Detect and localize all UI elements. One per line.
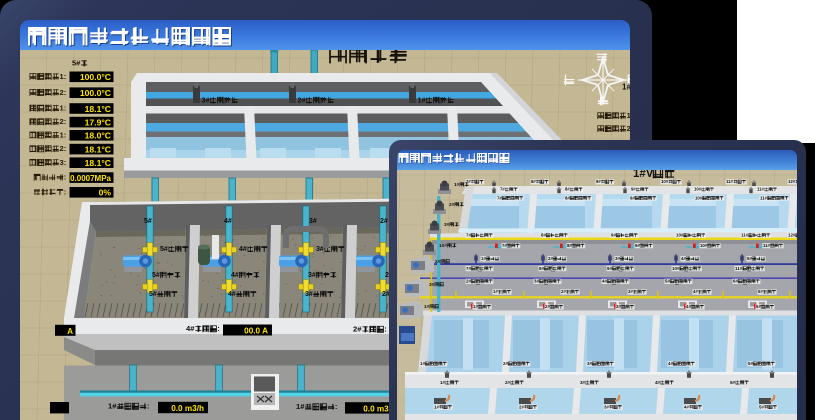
svg-text:2:: 2: <box>60 88 67 97</box>
svg-text:7#: 7# <box>502 243 507 248</box>
svg-text:18.0°C: 18.0°C <box>85 131 111 141</box>
svg-text:3:: 3: <box>60 158 67 167</box>
svg-text:9#: 9# <box>630 195 635 200</box>
svg-text:5#: 5# <box>747 256 752 261</box>
svg-text:1#: 1# <box>454 182 460 188</box>
svg-text:5#: 5# <box>144 218 152 225</box>
svg-text:1#: 1# <box>296 402 305 411</box>
svg-text:2#: 2# <box>380 218 388 225</box>
svg-text:3#: 3# <box>628 289 633 294</box>
svg-text:9#: 9# <box>596 179 601 184</box>
svg-text:8#: 8# <box>565 195 570 200</box>
svg-text:4#: 4# <box>602 279 607 284</box>
svg-text:1#: 1# <box>418 95 426 104</box>
svg-text:11#: 11# <box>735 266 743 271</box>
svg-text:5#: 5# <box>756 304 761 309</box>
svg-text:10#: 10# <box>700 243 708 248</box>
svg-text:11#: 11# <box>763 243 771 248</box>
svg-text:1#: 1# <box>493 289 498 294</box>
svg-text:2#: 2# <box>466 279 471 284</box>
svg-text:9#: 9# <box>635 243 640 248</box>
svg-text:5#: 5# <box>152 272 160 279</box>
svg-text:12#: 12# <box>788 179 796 184</box>
svg-text::: : <box>384 325 387 334</box>
svg-text:2:: 2: <box>627 124 630 133</box>
svg-text:7#: 7# <box>466 233 471 238</box>
svg-text:11#: 11# <box>741 233 749 238</box>
svg-text::: : <box>335 402 338 411</box>
svg-text:18.1°C: 18.1°C <box>85 144 111 154</box>
svg-text:10#: 10# <box>694 187 702 192</box>
svg-text:3#: 3# <box>316 246 324 253</box>
svg-text:2:: 2: <box>60 144 67 153</box>
svg-text:0.0 m3/: 0.0 m3/ <box>363 404 391 413</box>
svg-text:2#: 2# <box>545 304 550 309</box>
svg-text:1:: 1: <box>60 104 67 113</box>
svg-text:3#: 3# <box>202 95 210 104</box>
svg-text:1#V: 1#V <box>633 170 654 180</box>
svg-text:1#: 1# <box>473 304 478 309</box>
svg-text:8#: 8# <box>541 233 546 238</box>
svg-text:4#: 4# <box>224 218 232 225</box>
svg-text:2#: 2# <box>503 361 508 366</box>
svg-text:8#: 8# <box>539 266 544 271</box>
svg-text:6#: 6# <box>733 279 738 284</box>
svg-text:4#: 4# <box>668 361 673 366</box>
svg-text:9#: 9# <box>611 233 616 238</box>
svg-text:5#: 5# <box>149 291 157 298</box>
svg-text:10#: 10# <box>695 195 703 200</box>
svg-text:4#: 4# <box>693 289 698 294</box>
svg-text:3#: 3# <box>309 218 317 225</box>
svg-text:8#: 8# <box>531 179 536 184</box>
svg-text:11#: 11# <box>757 187 765 192</box>
svg-text:3#: 3# <box>444 222 450 228</box>
svg-text:5#: 5# <box>730 380 736 385</box>
svg-text:2#: 2# <box>519 404 524 409</box>
svg-text:1#: 1# <box>440 380 446 385</box>
svg-text:9#: 9# <box>607 266 612 271</box>
svg-text:4#: 4# <box>228 291 236 298</box>
svg-text::: : <box>64 173 67 182</box>
svg-text:2#: 2# <box>505 380 511 385</box>
svg-text:2#: 2# <box>449 202 455 208</box>
svg-text:10#: 10# <box>672 266 680 271</box>
svg-text:18.1°C: 18.1°C <box>85 158 111 168</box>
svg-text:10#: 10# <box>439 243 447 249</box>
svg-text:10#: 10# <box>676 233 684 238</box>
svg-text::: : <box>217 324 220 333</box>
svg-text:10#: 10# <box>661 179 669 184</box>
svg-text:3#: 3# <box>308 272 316 279</box>
svg-text:4#: 4# <box>655 380 661 385</box>
svg-text:5#: 5# <box>160 246 168 253</box>
svg-text:3#: 3# <box>534 279 539 284</box>
svg-text:1#: 1# <box>424 304 430 310</box>
svg-text:0.0007MPa: 0.0007MPa <box>70 174 111 183</box>
svg-text:3#: 3# <box>429 282 435 288</box>
svg-text:4#: 4# <box>231 272 239 279</box>
svg-text:17.9°C: 17.9°C <box>85 117 111 127</box>
svg-text:00.0 A: 00.0 A <box>244 327 268 336</box>
svg-text:0.0 m3/h: 0.0 m3/h <box>171 404 204 413</box>
svg-text:5#: 5# <box>758 289 763 294</box>
svg-text:2#: 2# <box>561 289 566 294</box>
svg-text:18.1°C: 18.1°C <box>85 104 111 114</box>
svg-text:1#: 1# <box>622 83 630 92</box>
svg-text:1:: 1: <box>627 111 630 120</box>
svg-text:8#: 8# <box>567 243 572 248</box>
svg-text::: : <box>64 187 67 196</box>
svg-text:7#: 7# <box>500 187 505 192</box>
svg-text:100.0°C: 100.0°C <box>80 88 111 98</box>
svg-text:2#: 2# <box>435 259 441 265</box>
svg-text:7#: 7# <box>466 266 471 271</box>
svg-text:2#: 2# <box>548 256 553 261</box>
svg-text:5#: 5# <box>665 279 670 284</box>
svg-text:11#: 11# <box>726 179 734 184</box>
svg-text:1#: 1# <box>434 404 439 409</box>
svg-text:5#: 5# <box>72 59 81 68</box>
svg-text:3#: 3# <box>616 304 621 309</box>
svg-text:100.0°C: 100.0°C <box>80 72 111 82</box>
svg-text:12#: 12# <box>788 233 796 238</box>
svg-text:2:: 2: <box>60 117 67 126</box>
svg-text:4#: 4# <box>186 324 195 333</box>
svg-text:4#: 4# <box>681 256 686 261</box>
svg-text:5#: 5# <box>759 404 764 409</box>
svg-text:3#: 3# <box>305 291 313 298</box>
svg-text:1#: 1# <box>481 256 486 261</box>
svg-text::: : <box>147 402 150 411</box>
svg-text:3#: 3# <box>580 380 586 385</box>
svg-text:5#: 5# <box>748 361 753 366</box>
svg-text:3#: 3# <box>615 256 620 261</box>
svg-text:11#: 11# <box>760 195 768 200</box>
svg-text:4#: 4# <box>684 404 689 409</box>
svg-text:1#: 1# <box>420 361 425 366</box>
svg-text:9#: 9# <box>631 187 636 192</box>
svg-text:4#: 4# <box>239 246 247 253</box>
svg-text:A: A <box>67 327 73 336</box>
svg-text:1#: 1# <box>108 402 117 411</box>
svg-text:7#: 7# <box>497 195 502 200</box>
svg-text:0%: 0% <box>99 188 112 198</box>
svg-text:8#: 8# <box>565 187 570 192</box>
svg-text:4#: 4# <box>686 304 691 309</box>
svg-text:1:: 1: <box>60 130 67 139</box>
svg-text:2#: 2# <box>298 95 306 104</box>
svg-text:3#: 3# <box>587 361 592 366</box>
svg-text:2#: 2# <box>353 325 362 334</box>
svg-text:1:: 1: <box>60 72 67 81</box>
svg-text:3#: 3# <box>604 404 609 409</box>
